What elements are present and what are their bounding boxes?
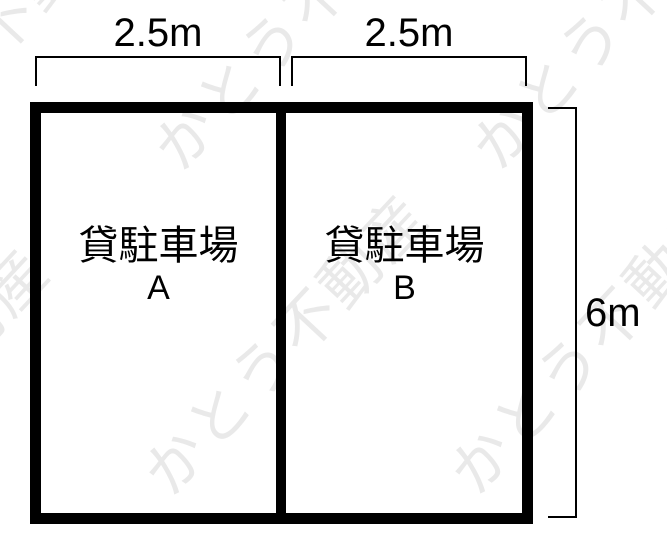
width-dimension-label-b: 2.5m <box>291 11 527 55</box>
parking-lot-diagram: 不動 かとう不動産 動産 かとう不動産 かとう不動産 かとう不動産 2.5m 2… <box>0 0 667 549</box>
parking-space-a-label: 貸駐車場 A <box>41 222 276 306</box>
height-dimension-label: 6m <box>585 291 655 335</box>
space-b-title: 貸駐車場 <box>286 222 523 270</box>
width-dimension-label-a: 2.5m <box>35 11 281 55</box>
height-dimension-bracket <box>548 107 577 518</box>
space-a-unit: A <box>41 270 276 306</box>
space-b-unit: B <box>286 270 523 306</box>
width-dimension-bracket-a <box>35 56 281 86</box>
space-a-title: 貸駐車場 <box>41 222 276 270</box>
width-dimension-bracket-b <box>291 56 527 86</box>
parking-space-b-label: 貸駐車場 B <box>286 222 523 306</box>
parking-space-divider-line <box>276 102 286 524</box>
